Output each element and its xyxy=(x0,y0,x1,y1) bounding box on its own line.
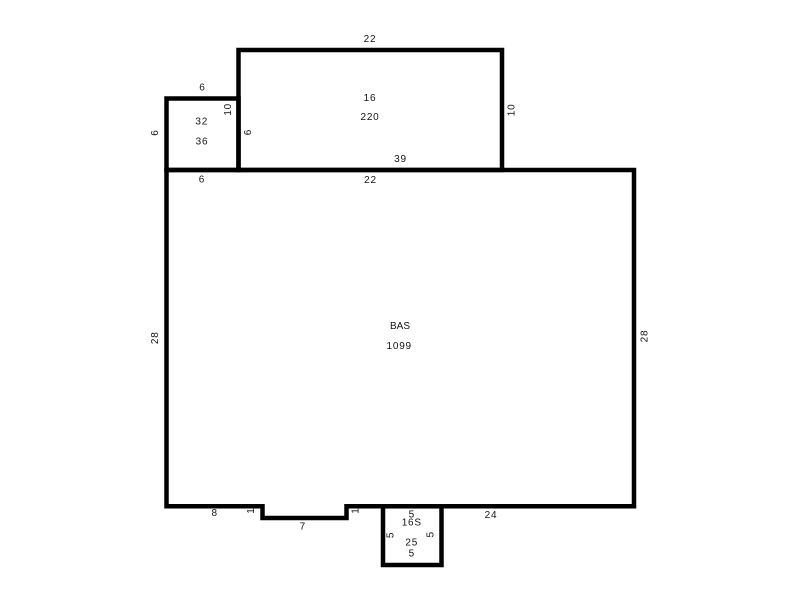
svg-text:16S: 16S xyxy=(402,518,422,529)
svg-text:1: 1 xyxy=(246,508,257,514)
svg-text:22: 22 xyxy=(364,175,377,186)
svg-text:5: 5 xyxy=(409,548,415,559)
svg-text:39: 39 xyxy=(394,154,407,165)
svg-text:6: 6 xyxy=(243,129,254,135)
svg-text:220: 220 xyxy=(360,112,379,123)
svg-text:10: 10 xyxy=(507,104,518,117)
svg-text:32: 32 xyxy=(195,116,208,127)
svg-text:36: 36 xyxy=(196,136,209,147)
svg-text:16: 16 xyxy=(364,93,377,104)
svg-text:28: 28 xyxy=(639,330,650,343)
svg-text:7: 7 xyxy=(300,522,306,533)
svg-text:6: 6 xyxy=(199,82,205,93)
svg-text:BAS: BAS xyxy=(390,321,410,332)
svg-text:8: 8 xyxy=(212,508,218,519)
svg-text:25: 25 xyxy=(405,538,418,549)
svg-text:10: 10 xyxy=(223,103,234,116)
svg-text:5: 5 xyxy=(426,531,437,537)
svg-text:6: 6 xyxy=(199,174,205,185)
svg-text:6: 6 xyxy=(150,130,161,136)
svg-text:1099: 1099 xyxy=(386,341,411,352)
svg-text:1: 1 xyxy=(351,508,362,514)
svg-text:24: 24 xyxy=(485,510,498,521)
svg-text:28: 28 xyxy=(150,331,161,344)
svg-text:22: 22 xyxy=(364,34,377,45)
svg-text:5: 5 xyxy=(386,532,397,538)
